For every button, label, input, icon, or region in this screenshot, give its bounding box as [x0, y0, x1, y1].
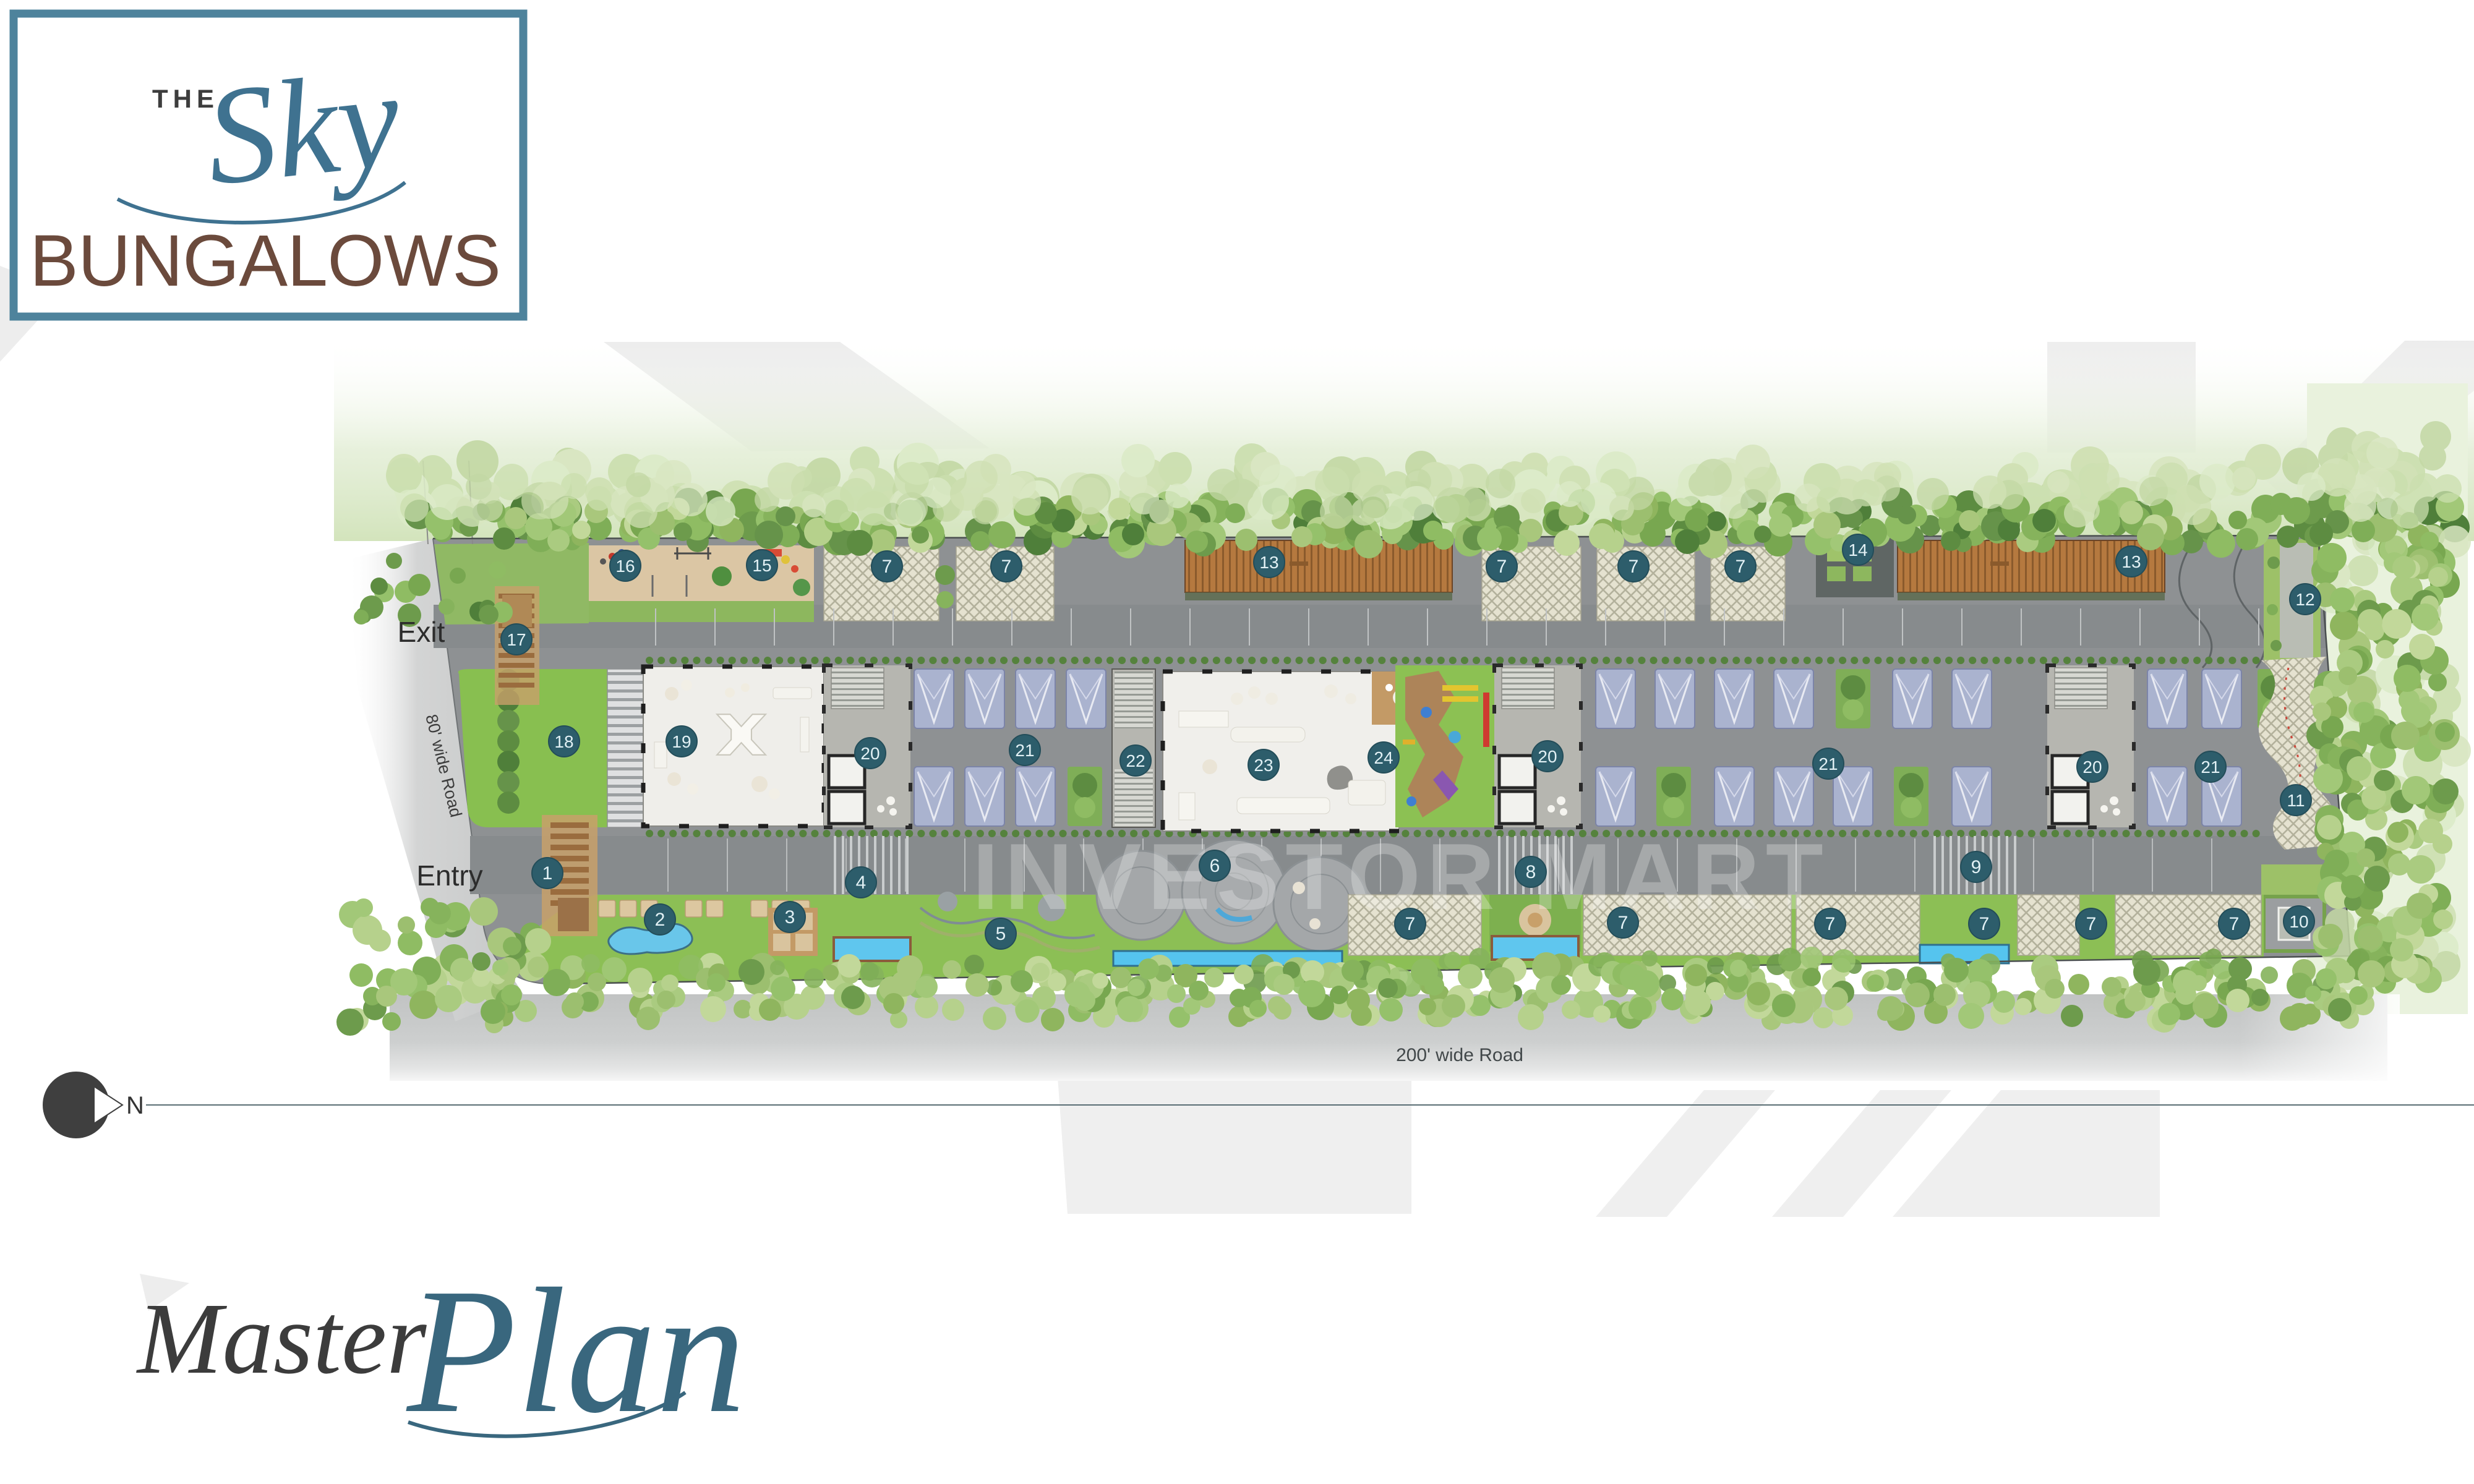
- svg-text:7: 7: [1629, 556, 1639, 577]
- svg-text:19: 19: [672, 732, 691, 751]
- svg-text:5: 5: [996, 924, 1006, 944]
- svg-text:22: 22: [1126, 751, 1145, 770]
- svg-text:21: 21: [2201, 757, 2220, 777]
- svg-text:20: 20: [1538, 747, 1557, 766]
- svg-text:6: 6: [1210, 856, 1220, 876]
- svg-text:Exit: Exit: [398, 616, 445, 648]
- svg-text:20: 20: [860, 744, 880, 763]
- svg-text:20: 20: [2082, 757, 2102, 777]
- svg-text:Plan: Plan: [404, 1252, 745, 1450]
- svg-text:7: 7: [1736, 556, 1746, 577]
- svg-text:Sky: Sky: [199, 40, 407, 214]
- svg-text:18: 18: [554, 732, 573, 751]
- svg-text:Master: Master: [136, 1282, 427, 1395]
- svg-text:21: 21: [1015, 741, 1034, 760]
- svg-text:9: 9: [1971, 857, 1982, 877]
- svg-text:17: 17: [507, 630, 526, 649]
- svg-text:7: 7: [882, 556, 892, 577]
- svg-text:7: 7: [1405, 914, 1416, 934]
- svg-text:7: 7: [1618, 913, 1629, 933]
- svg-text:14: 14: [1848, 540, 1867, 560]
- svg-text:7: 7: [1825, 914, 1836, 934]
- svg-text:21: 21: [1818, 754, 1838, 774]
- svg-text:2: 2: [655, 910, 666, 930]
- svg-text:13: 13: [1259, 553, 1278, 572]
- svg-text:15: 15: [752, 556, 771, 575]
- svg-text:8: 8: [1526, 862, 1536, 882]
- svg-text:23: 23: [1254, 756, 1273, 775]
- svg-text:13: 13: [2121, 552, 2141, 571]
- svg-text:Entry: Entry: [416, 859, 482, 892]
- svg-text:3: 3: [785, 907, 795, 927]
- svg-text:7: 7: [1979, 914, 1990, 934]
- svg-text:10: 10: [2289, 912, 2308, 931]
- svg-text:7: 7: [1497, 556, 1507, 577]
- svg-text:12: 12: [2295, 590, 2314, 609]
- svg-text:200' wide Road: 200' wide Road: [1396, 1045, 1523, 1065]
- svg-text:7: 7: [2229, 914, 2240, 934]
- svg-text:7: 7: [1001, 556, 1012, 577]
- svg-text:11: 11: [2287, 791, 2305, 810]
- svg-text:BUNGALOWS: BUNGALOWS: [30, 220, 506, 302]
- svg-text:N: N: [126, 1092, 144, 1119]
- svg-text:7: 7: [2086, 914, 2097, 934]
- svg-text:4: 4: [856, 872, 867, 893]
- svg-text:16: 16: [615, 556, 635, 576]
- svg-text:24: 24: [1374, 748, 1393, 767]
- svg-text:1: 1: [542, 863, 553, 884]
